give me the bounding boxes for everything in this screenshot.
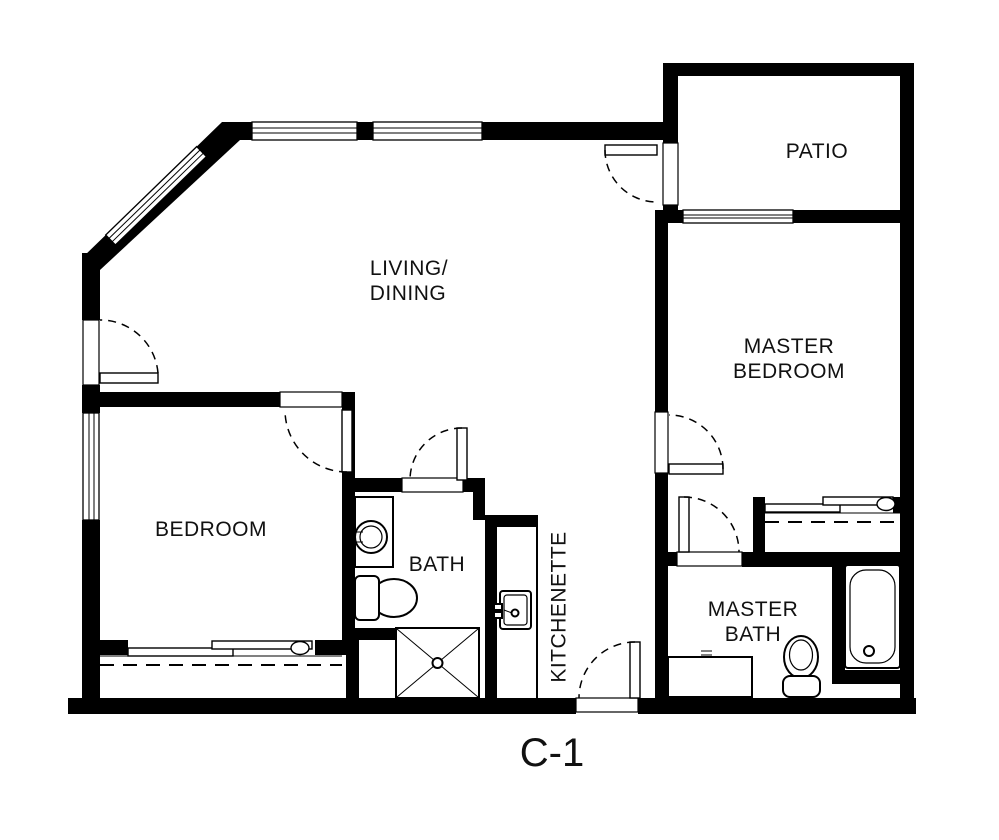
wall-tub-alcove-left	[832, 565, 845, 672]
door-bedroom-opening	[280, 392, 342, 407]
wall-right-exterior	[900, 63, 914, 714]
closet-master-slider-knob	[877, 498, 895, 511]
window-top-left-frame	[252, 122, 357, 140]
master-vanity	[668, 651, 752, 697]
master-toilet-tank	[783, 676, 820, 697]
door-living-left-opening	[83, 320, 99, 385]
window-bedroom-left-frame	[83, 413, 99, 520]
bath-toilet-tank	[355, 576, 379, 620]
room-label-patio: PATIO	[786, 140, 848, 163]
window-top-right	[373, 122, 482, 140]
wall-patio-left-upper	[663, 63, 678, 143]
kitchenette-drain	[512, 610, 519, 617]
kitchenette-faucet2	[494, 612, 502, 618]
window-patio	[683, 210, 793, 223]
door-bath-opening	[402, 478, 463, 492]
wall-left-lower	[82, 520, 100, 714]
door-master-bath-leaf	[679, 497, 689, 552]
closet-bedroom-slider-knob	[291, 642, 309, 655]
bathtub-drain	[864, 646, 874, 656]
wall-patio-top	[663, 63, 914, 76]
wall-kitchenette-cap	[485, 515, 538, 527]
room-label-living-line2: DINING	[370, 282, 447, 305]
wall-patio-bottom-right	[793, 210, 914, 223]
door-master-bedroom-leaf	[669, 464, 723, 474]
door-bath-leaf	[457, 428, 467, 480]
room-label-bath: BATH	[409, 553, 465, 576]
window-top-left	[252, 122, 357, 140]
wall-bedroom-closet-stub-left	[97, 640, 128, 655]
room-label-master-bedroom-line2: BEDROOM	[733, 360, 845, 383]
bath-toilet	[355, 576, 417, 620]
room-label-living-line1: LIVING/	[370, 257, 448, 280]
wall-bottom-left	[68, 698, 576, 714]
door-unit-entry-opening	[576, 698, 638, 712]
bathtub	[845, 565, 900, 668]
door-patio-leaf	[605, 145, 657, 155]
bath-vanity	[355, 497, 393, 567]
master-toilet	[783, 636, 820, 697]
room-label-master-bedroom-line1: MASTER	[744, 335, 835, 358]
shower	[396, 628, 479, 698]
window-patio-frame	[683, 210, 793, 223]
room-label-master-bath-line1: MASTER	[708, 598, 799, 621]
kitchenette-faucet	[494, 604, 502, 610]
wall-bedroom-top	[82, 392, 280, 407]
wall-bath-right	[473, 478, 485, 520]
wall-bath-top-left	[342, 478, 402, 492]
wall-left-upper	[82, 253, 100, 320]
floor-plan-drawing: LIVING/ DINING PATIO MASTER BEDROOM BEDR…	[0, 0, 999, 840]
wall-masterbath-top-left	[655, 552, 677, 566]
wall-tub-alcove-bottom	[832, 670, 913, 684]
wall-bottom-right	[638, 698, 916, 714]
room-label-master-bath-line2: BATH	[725, 623, 781, 646]
door-master-bedroom-opening	[655, 412, 668, 473]
wall-master-left-lower	[655, 473, 668, 703]
room-label-kitchenette: KITCHENETTE	[547, 531, 570, 682]
shower-drain	[433, 658, 443, 668]
wall-master-closet-left	[753, 497, 765, 557]
wall-master-left-upper	[655, 210, 668, 412]
wall-bedroom-closet-stub-right	[315, 640, 355, 655]
door-unit-entry-leaf	[630, 642, 640, 698]
window-bedroom-left	[83, 413, 99, 520]
unit-label: C-1	[520, 731, 584, 775]
master-vanity-counter	[668, 657, 752, 697]
wall-bath-jog	[342, 628, 395, 640]
floor-plan-page: LIVING/ DINING PATIO MASTER BEDROOM BEDR…	[0, 0, 999, 840]
room-label-bedroom: BEDROOM	[155, 518, 267, 541]
door-bedroom-leaf	[342, 410, 352, 472]
door-patio-opening	[663, 143, 678, 205]
window-top-right-frame	[373, 122, 482, 140]
door-living-left-leaf	[100, 373, 158, 383]
door-master-bath-opening	[677, 552, 742, 566]
